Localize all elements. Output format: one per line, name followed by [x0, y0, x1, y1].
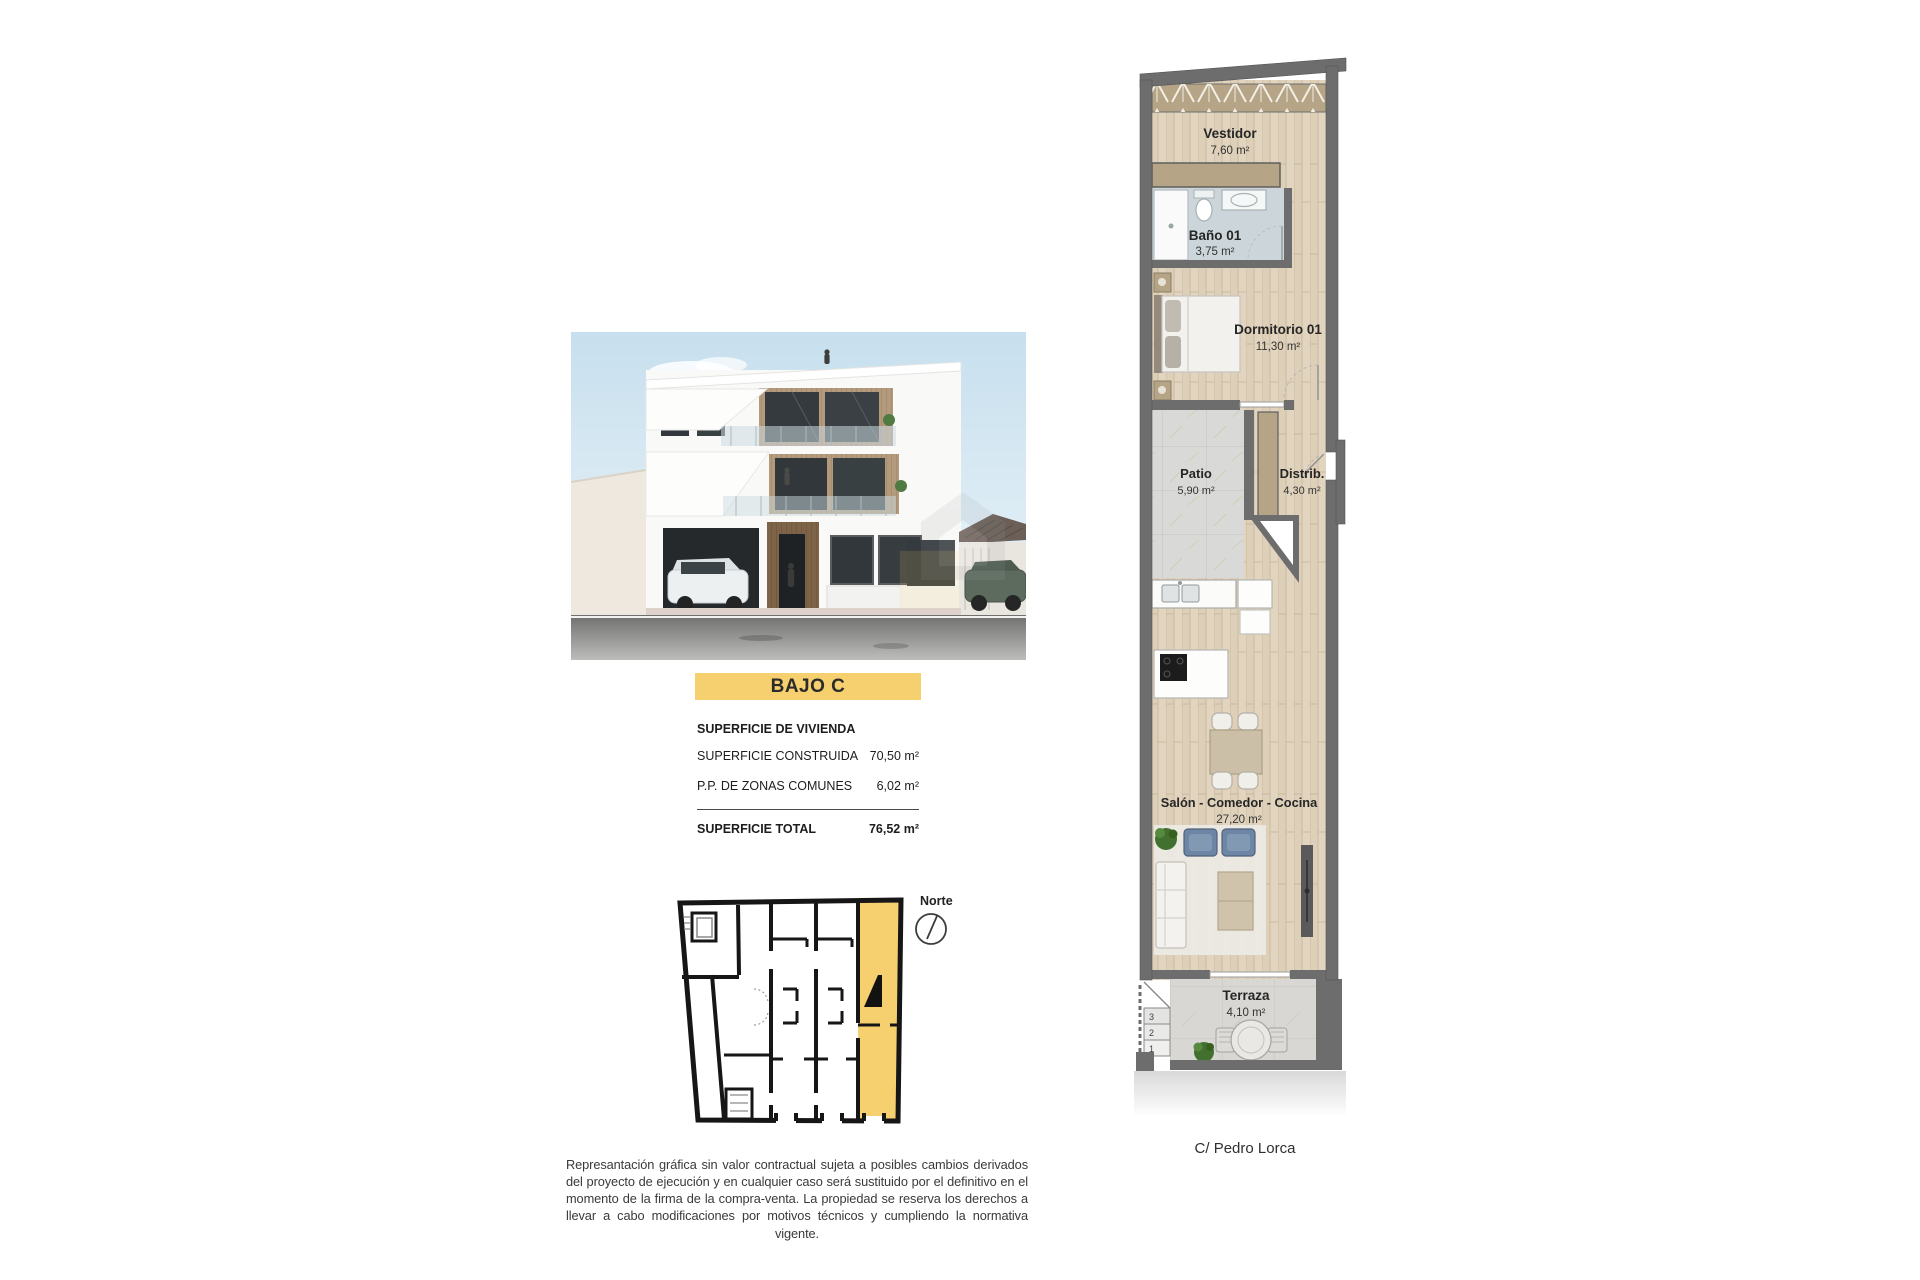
- closet-bar: [1152, 163, 1280, 187]
- room-label: Dormitorio 01: [1234, 322, 1322, 337]
- step-number: 2: [1149, 1028, 1154, 1038]
- compass-icon: [912, 908, 952, 948]
- room-label: Terraza: [1222, 988, 1270, 1003]
- apartment-floorplan: 3 2 1: [1118, 50, 1363, 1170]
- floorplan-sheet: BAJO C SUPERFICIE DE VIVIENDA SUPERFICIE…: [0, 0, 1920, 1280]
- row-value: 6,02 m²: [877, 779, 919, 793]
- table-divider: [697, 809, 919, 810]
- main-building: [646, 349, 965, 632]
- compass-label: Norte: [920, 894, 982, 908]
- unit-banner-label: BAJO C: [771, 676, 846, 698]
- terrace-steps: 3 2 1: [1140, 985, 1170, 1056]
- balcony-person: [784, 467, 789, 485]
- room-area: 11,30 m²: [1256, 341, 1301, 353]
- surface-table: SUPERFICIE DE VIVIENDA SUPERFICIE CONSTR…: [697, 722, 919, 836]
- step-number: 3: [1149, 1012, 1154, 1022]
- building-render: [571, 270, 1026, 660]
- compass: Norte: [912, 894, 982, 953]
- room-label: Baño 01: [1189, 228, 1242, 243]
- highlighted-unit: [858, 900, 901, 1121]
- row-label: P.P. DE ZONAS COMUNES: [697, 779, 852, 793]
- entrance-person: [788, 563, 794, 587]
- room-area: 7,60 m²: [1211, 145, 1250, 157]
- room-area: 4,10 m²: [1227, 1007, 1266, 1019]
- row-label: SUPERFICIE CONSTRUIDA: [697, 749, 858, 763]
- table-row: SUPERFICIE CONSTRUIDA 70,50 m²: [697, 749, 919, 763]
- room-label: Salón - Comedor - Cocina: [1161, 795, 1318, 810]
- legal-disclaimer: Represantación gráfica sin valor contrac…: [566, 1156, 1028, 1242]
- table-total-row: SUPERFICIE TOTAL 76,52 m²: [697, 822, 919, 836]
- room-area: 27,20 m²: [1216, 814, 1262, 826]
- unit-banner: BAJO C: [695, 673, 921, 700]
- room-area: 4,30 m²: [1283, 485, 1321, 497]
- room-area: 5,90 m²: [1177, 485, 1215, 497]
- room-label: Vestidor: [1203, 126, 1257, 141]
- roof-person: [824, 349, 829, 364]
- table-row: P.P. DE ZONAS COMUNES 6,02 m²: [697, 779, 919, 793]
- street: [571, 608, 1026, 660]
- street-shadow: [1134, 1071, 1346, 1117]
- total-label: SUPERFICIE TOTAL: [697, 822, 816, 836]
- row-value: 70,50 m²: [870, 749, 919, 763]
- sofa: [1156, 862, 1186, 948]
- neighbor-left: [571, 470, 646, 618]
- surface-table-header: SUPERFICIE DE VIVIENDA: [697, 722, 919, 736]
- street-label: C/ Pedro Lorca: [1195, 1140, 1297, 1157]
- wardrobe-strip: [1152, 84, 1326, 112]
- room-area: 3,75 m²: [1196, 246, 1235, 258]
- room-label: Patio: [1180, 466, 1212, 481]
- room-label: Distrib.: [1280, 466, 1325, 481]
- total-value: 76,52 m²: [869, 822, 919, 836]
